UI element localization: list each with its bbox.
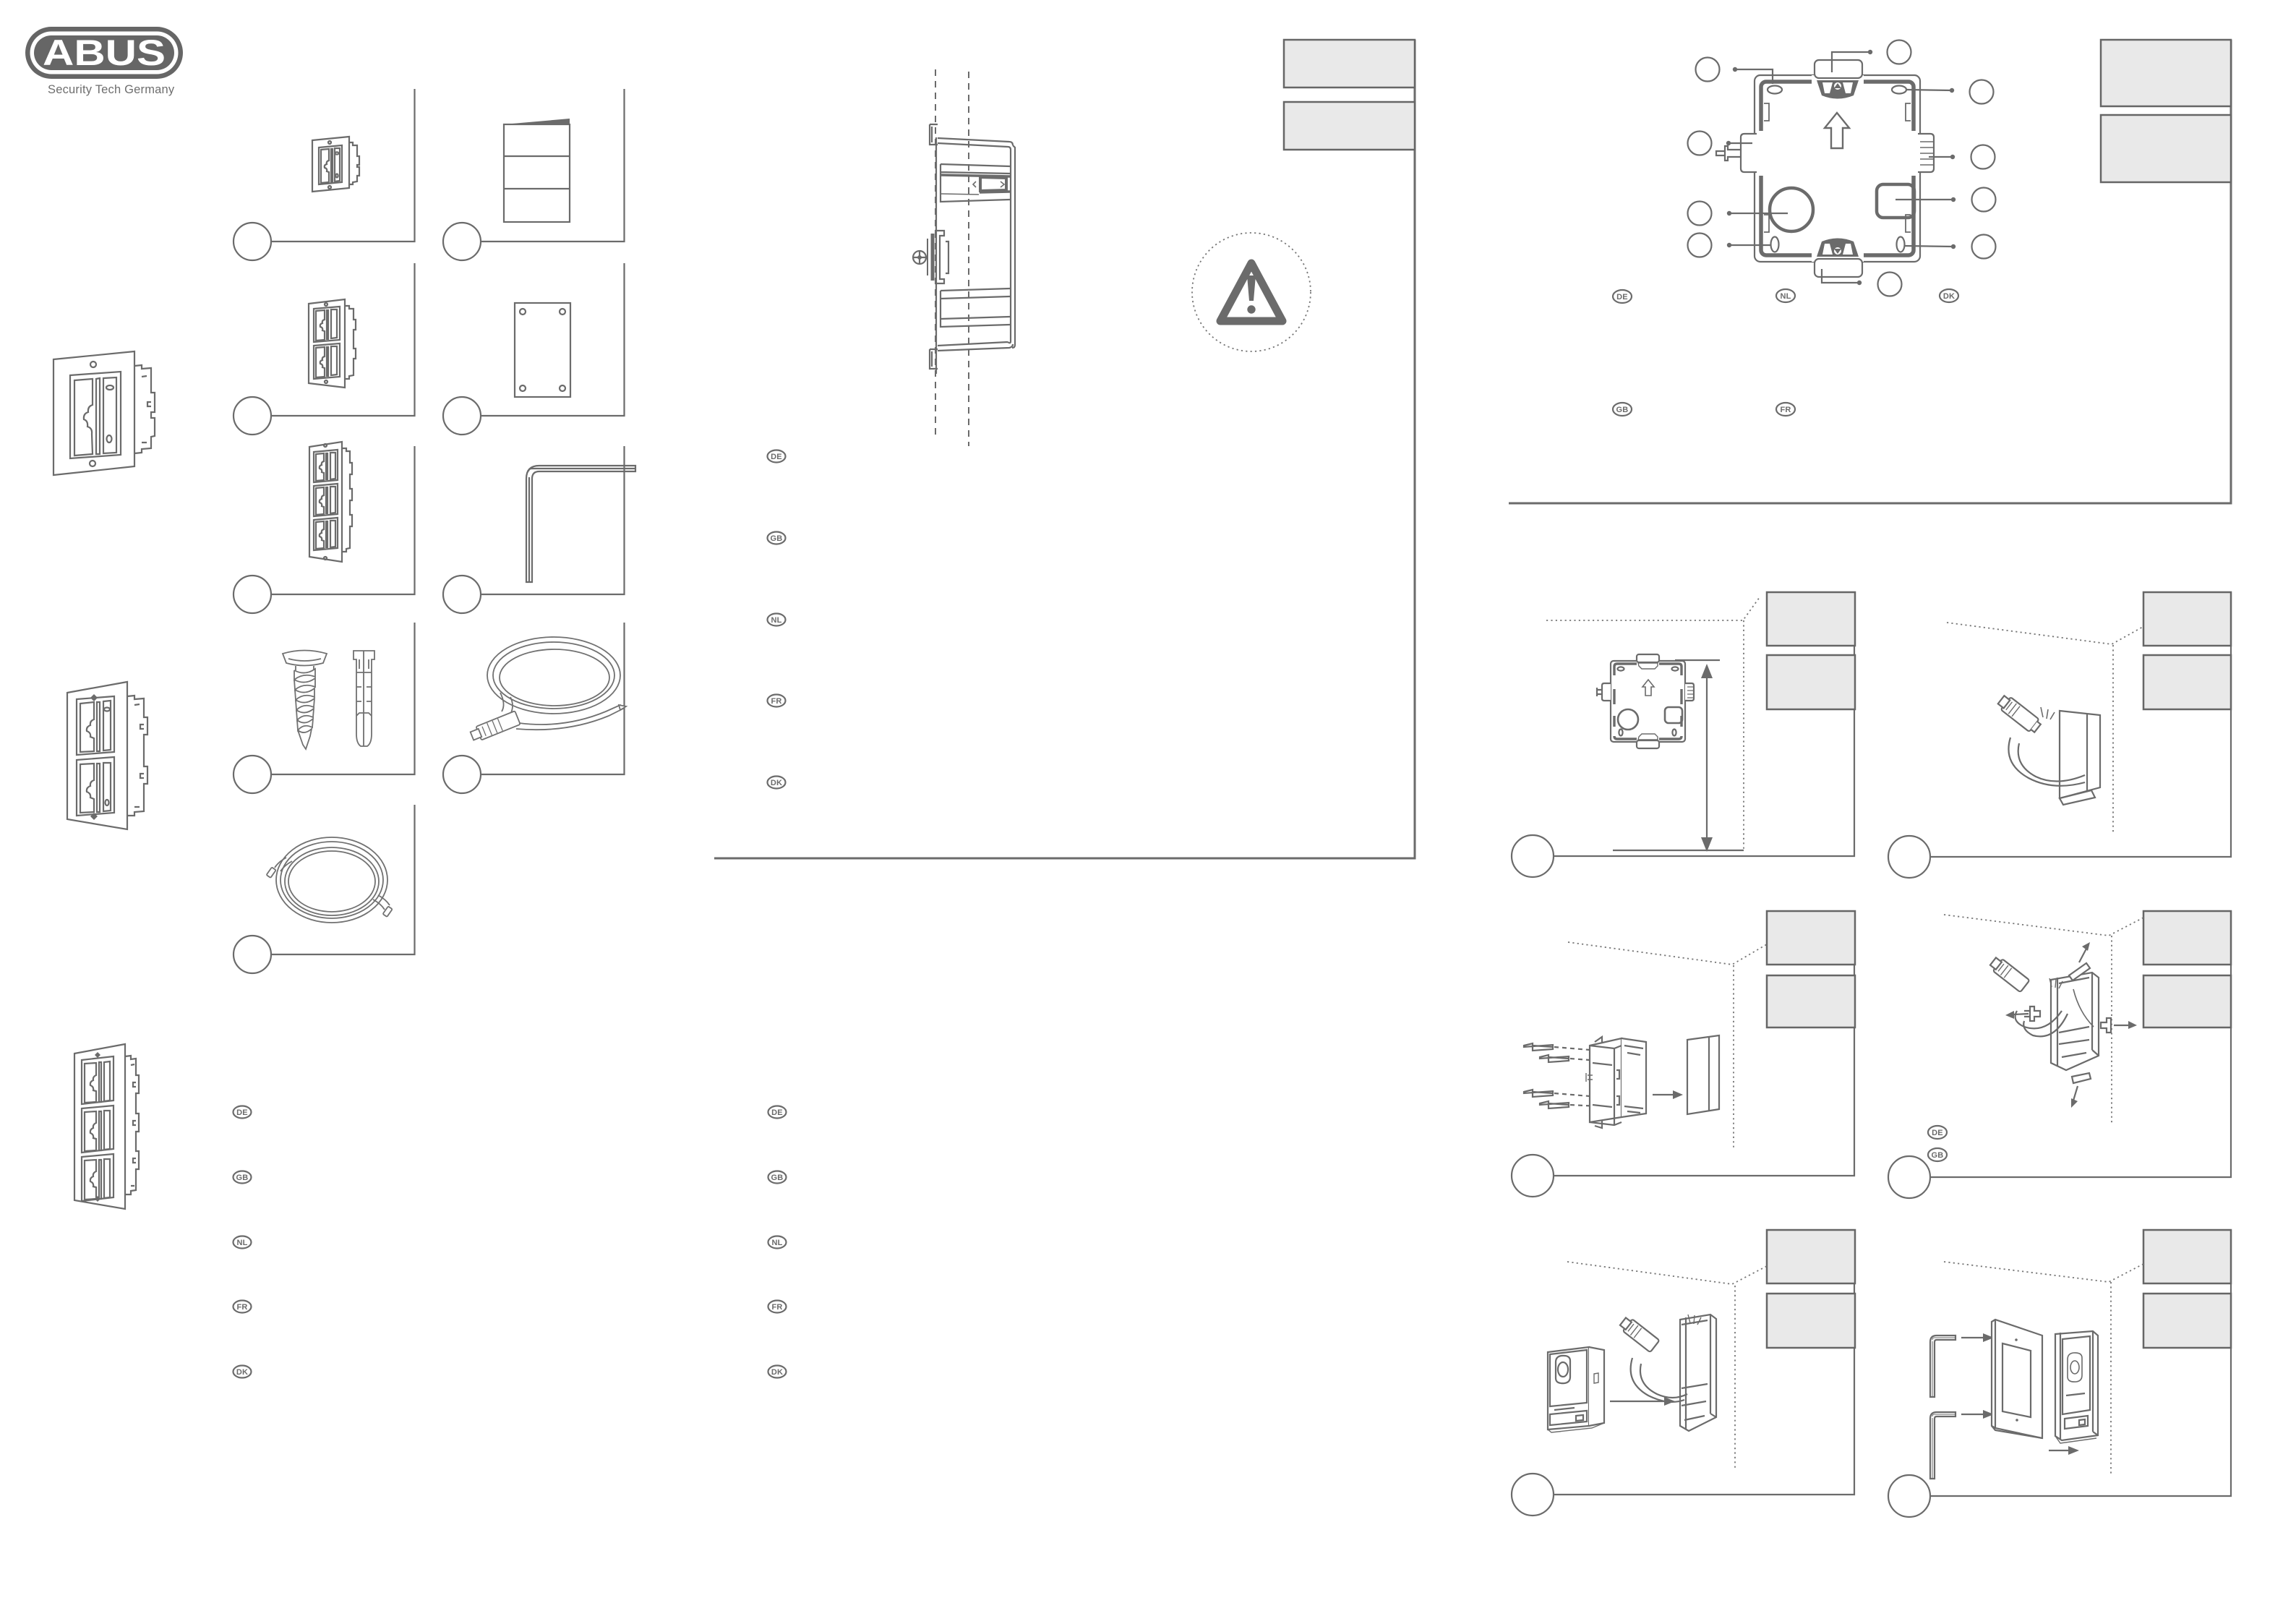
svg-text:DE: DE [771,1108,783,1117]
svg-text:FR: FR [236,1303,247,1312]
svg-text:GB: GB [236,1174,249,1182]
svg-text:FR: FR [1780,406,1791,414]
svg-text:FR: FR [771,697,781,706]
svg-text:NL: NL [236,1239,247,1247]
svg-text:DE: DE [236,1108,248,1117]
svg-text:NL: NL [771,1239,782,1247]
svg-text:GB: GB [771,534,783,543]
svg-text:NL: NL [771,616,781,625]
svg-text:DK: DK [1943,292,1955,301]
svg-text:FR: FR [771,1303,782,1312]
svg-text:DE: DE [1932,1129,1943,1137]
svg-text:DK: DK [771,1368,783,1377]
svg-text:DE: DE [771,453,782,461]
svg-text:ABUS: ABUS [43,33,166,73]
svg-text:DK: DK [236,1368,248,1377]
svg-text:GB: GB [1616,406,1629,414]
svg-text:GB: GB [771,1174,784,1182]
svg-text:GB: GB [1932,1151,1944,1160]
svg-text:DK: DK [771,779,782,787]
svg-text:DE: DE [1616,293,1628,302]
svg-text:NL: NL [1780,292,1791,301]
svg-text:Security Tech Germany: Security Tech Germany [48,83,175,96]
